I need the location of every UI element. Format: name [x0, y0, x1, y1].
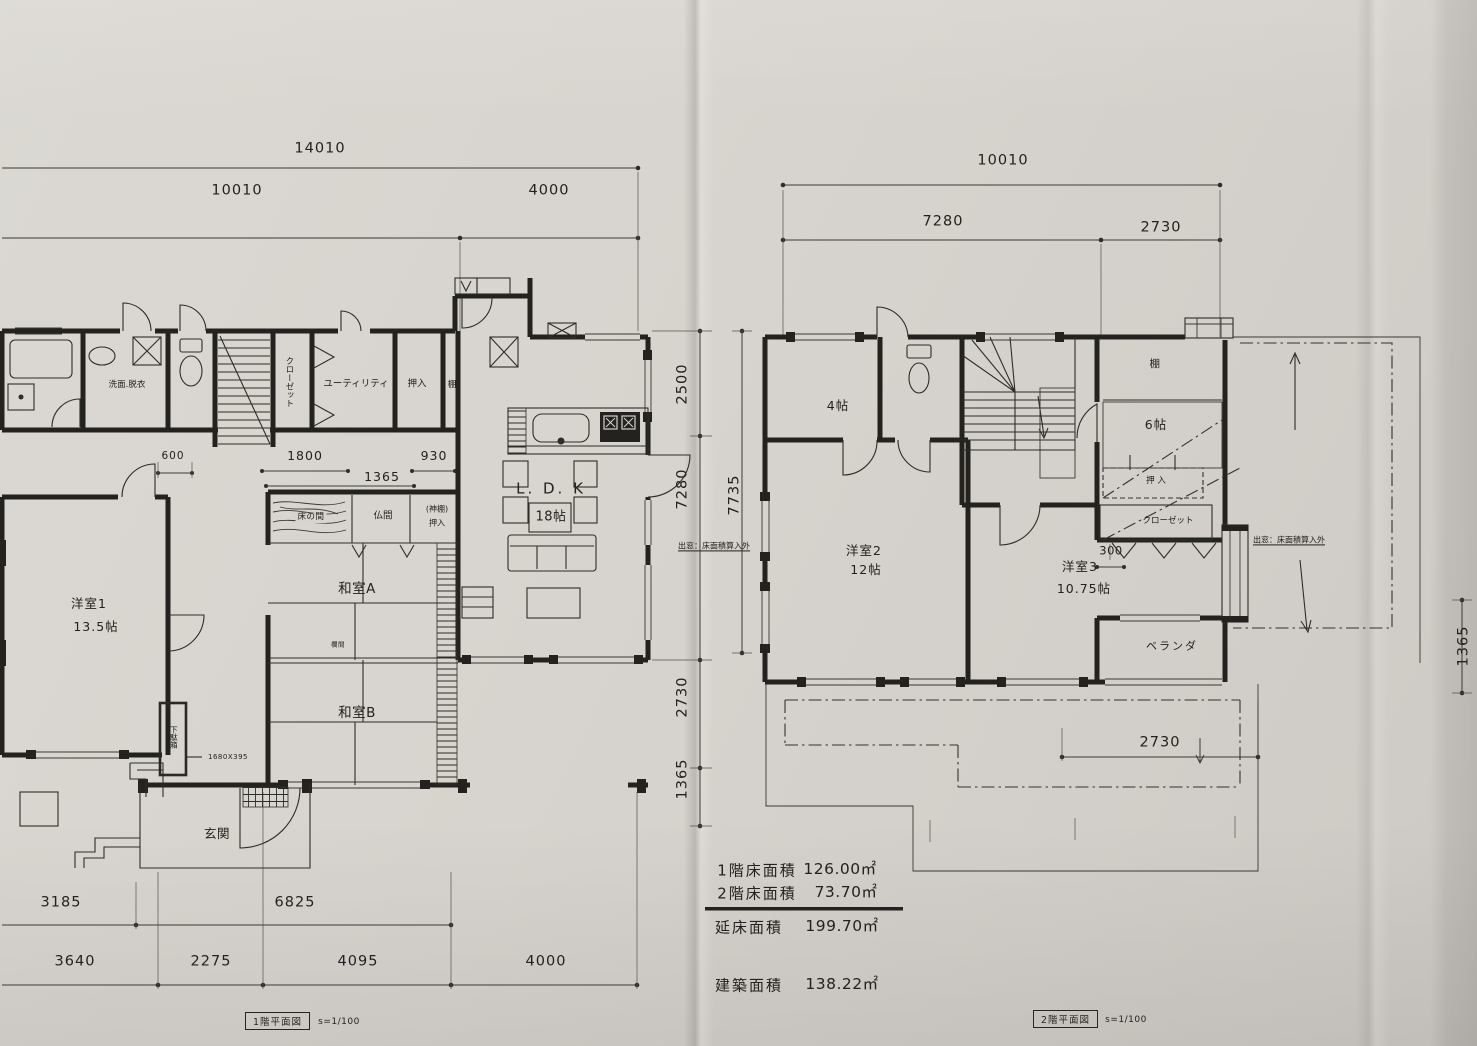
room-western2-size: 12帖 — [850, 563, 881, 577]
room-western2: 洋室2 — [846, 544, 882, 558]
area-table-underline — [705, 907, 903, 911]
room-shelf-1f: 棚 — [445, 380, 455, 389]
dim-1f-2275: 2275 — [191, 954, 232, 971]
room-kamidana-line2: 押入 — [429, 518, 445, 527]
dim-1f-600: 600 — [161, 450, 184, 462]
dim-1f-1800: 1800 — [287, 449, 323, 463]
bay-window-right — [1222, 525, 1248, 622]
room-utility: ユーティリティ — [323, 380, 388, 391]
caption-1f: 1階平面図 — [245, 1012, 310, 1030]
stairs-2f — [962, 337, 1075, 478]
toilet-1f-icon — [180, 339, 202, 386]
dim-1f-3640: 3640 — [55, 954, 96, 971]
plan-1f-linework — [0, 166, 752, 989]
dim-2f-1365: 1365 — [1456, 626, 1473, 667]
dim-1f-7735: 7735 — [727, 475, 744, 516]
room-butsuma: 仏間 — [373, 512, 392, 523]
shower-unit-icon — [133, 337, 161, 365]
dim-1f-2730: 2730 — [675, 677, 692, 718]
room-ldk: L. D. K — [516, 480, 586, 497]
room-tokonoma-label: 床の間 — [295, 513, 326, 523]
dim-1f-4095: 4095 — [338, 954, 379, 971]
kitchen-counter — [508, 408, 648, 454]
room-closet-2f: クローゼット — [1142, 517, 1193, 527]
dim-2f-300: 300 — [1099, 544, 1122, 557]
area-row-value: 73.70㎡ — [815, 884, 878, 902]
roof-outline-bottom — [766, 684, 1258, 871]
dim-1f-14010: 14010 — [294, 141, 345, 158]
room-japanese-a: 和室A — [338, 582, 376, 598]
room-kamidana-line1: (神棚) — [426, 504, 448, 513]
dim-2f-10010: 10010 — [977, 153, 1028, 170]
room-closet-1f: クローゼット — [283, 357, 293, 408]
coffee-table — [527, 588, 580, 618]
room-ldk-size: 18帖 — [535, 511, 566, 526]
floor-plan-scan: 14010 10010 4000 洗面.脱衣 クローゼット ユーティリティ 押入… — [0, 0, 1477, 1046]
room-western1-size: 13.5帖 — [73, 620, 118, 634]
room-shoe-cabinet: 下駄箱 — [169, 726, 178, 749]
dim-1f-4000-bottom: 4000 — [526, 954, 567, 971]
area-row-label: 建築面積 — [715, 977, 783, 994]
bathtub-icon — [8, 340, 72, 410]
shoe-cabinet-size: 1680X395 — [208, 753, 248, 761]
toilet-2f-icon — [907, 345, 931, 393]
bay-window-note-2f: 出窓：床面積算入外 — [1253, 535, 1325, 544]
area-row-label: 延床面積 — [715, 919, 783, 936]
dim-2f-2730-bottom: 2730 — [1140, 735, 1181, 752]
sink-icon — [89, 347, 115, 365]
area-row-value: 199.70㎡ — [805, 918, 878, 936]
room-entrance: 玄関 — [204, 827, 230, 841]
engawa-strip — [437, 543, 457, 785]
room-4jo: 4帖 — [827, 399, 849, 413]
dim-1f-4000-top: 4000 — [529, 183, 570, 200]
dim-1f-930: 930 — [421, 449, 448, 463]
tv-board — [462, 587, 493, 618]
dim-2f-2730-top: 2730 — [1141, 220, 1182, 237]
room-washroom: 洗面.脱衣 — [109, 381, 146, 391]
dim-1f-2500: 2500 — [675, 364, 692, 405]
stairs-1f — [218, 336, 270, 444]
area-row-label: 2階床面積 — [717, 885, 797, 902]
dim-2f-7280: 7280 — [923, 214, 964, 231]
room-ranma: 欄間 — [331, 641, 345, 648]
room-western1: 洋室1 — [71, 597, 107, 611]
area-row-value: 138.22㎡ — [805, 976, 878, 994]
plan-2f-linework — [760, 183, 1472, 871]
room-6jo: 6帖 — [1145, 418, 1167, 432]
area-row-value: 126.00㎡ — [803, 861, 876, 879]
bay-window-top — [1185, 318, 1233, 338]
roof-outline-right — [1233, 337, 1420, 663]
room-oshiire-2f: 押 入 — [1146, 477, 1166, 487]
room-oshiire-1f: 押入 — [407, 380, 426, 391]
dim-1f-6825: 6825 — [275, 895, 316, 912]
caption-1f-scale: s=1/100 — [318, 1017, 360, 1027]
room-western3-size: 10.75帖 — [1057, 582, 1111, 596]
dim-1f-3185: 3185 — [41, 895, 82, 912]
bay-window-note-1f: 出窓：床面積算入外 — [678, 541, 750, 550]
caption-2f-scale: s=1/100 — [1105, 1015, 1147, 1025]
area-row-label: 1階床面積 — [717, 862, 797, 879]
room-japanese-b: 和室B — [338, 706, 376, 722]
room-veranda: ベランダ — [1146, 641, 1198, 654]
caption-2f: 2階平面図 — [1033, 1010, 1098, 1028]
room-shelf-2f: 棚 — [1150, 358, 1161, 370]
dim-1f-10010: 10010 — [211, 183, 262, 200]
sofa — [508, 535, 596, 571]
room-western3: 洋室3 — [1062, 560, 1098, 574]
dim-1f-1365-right: 1365 — [675, 759, 692, 800]
dim-1f-1365: 1365 — [364, 470, 400, 484]
dim-1f-7280: 7280 — [675, 469, 692, 510]
